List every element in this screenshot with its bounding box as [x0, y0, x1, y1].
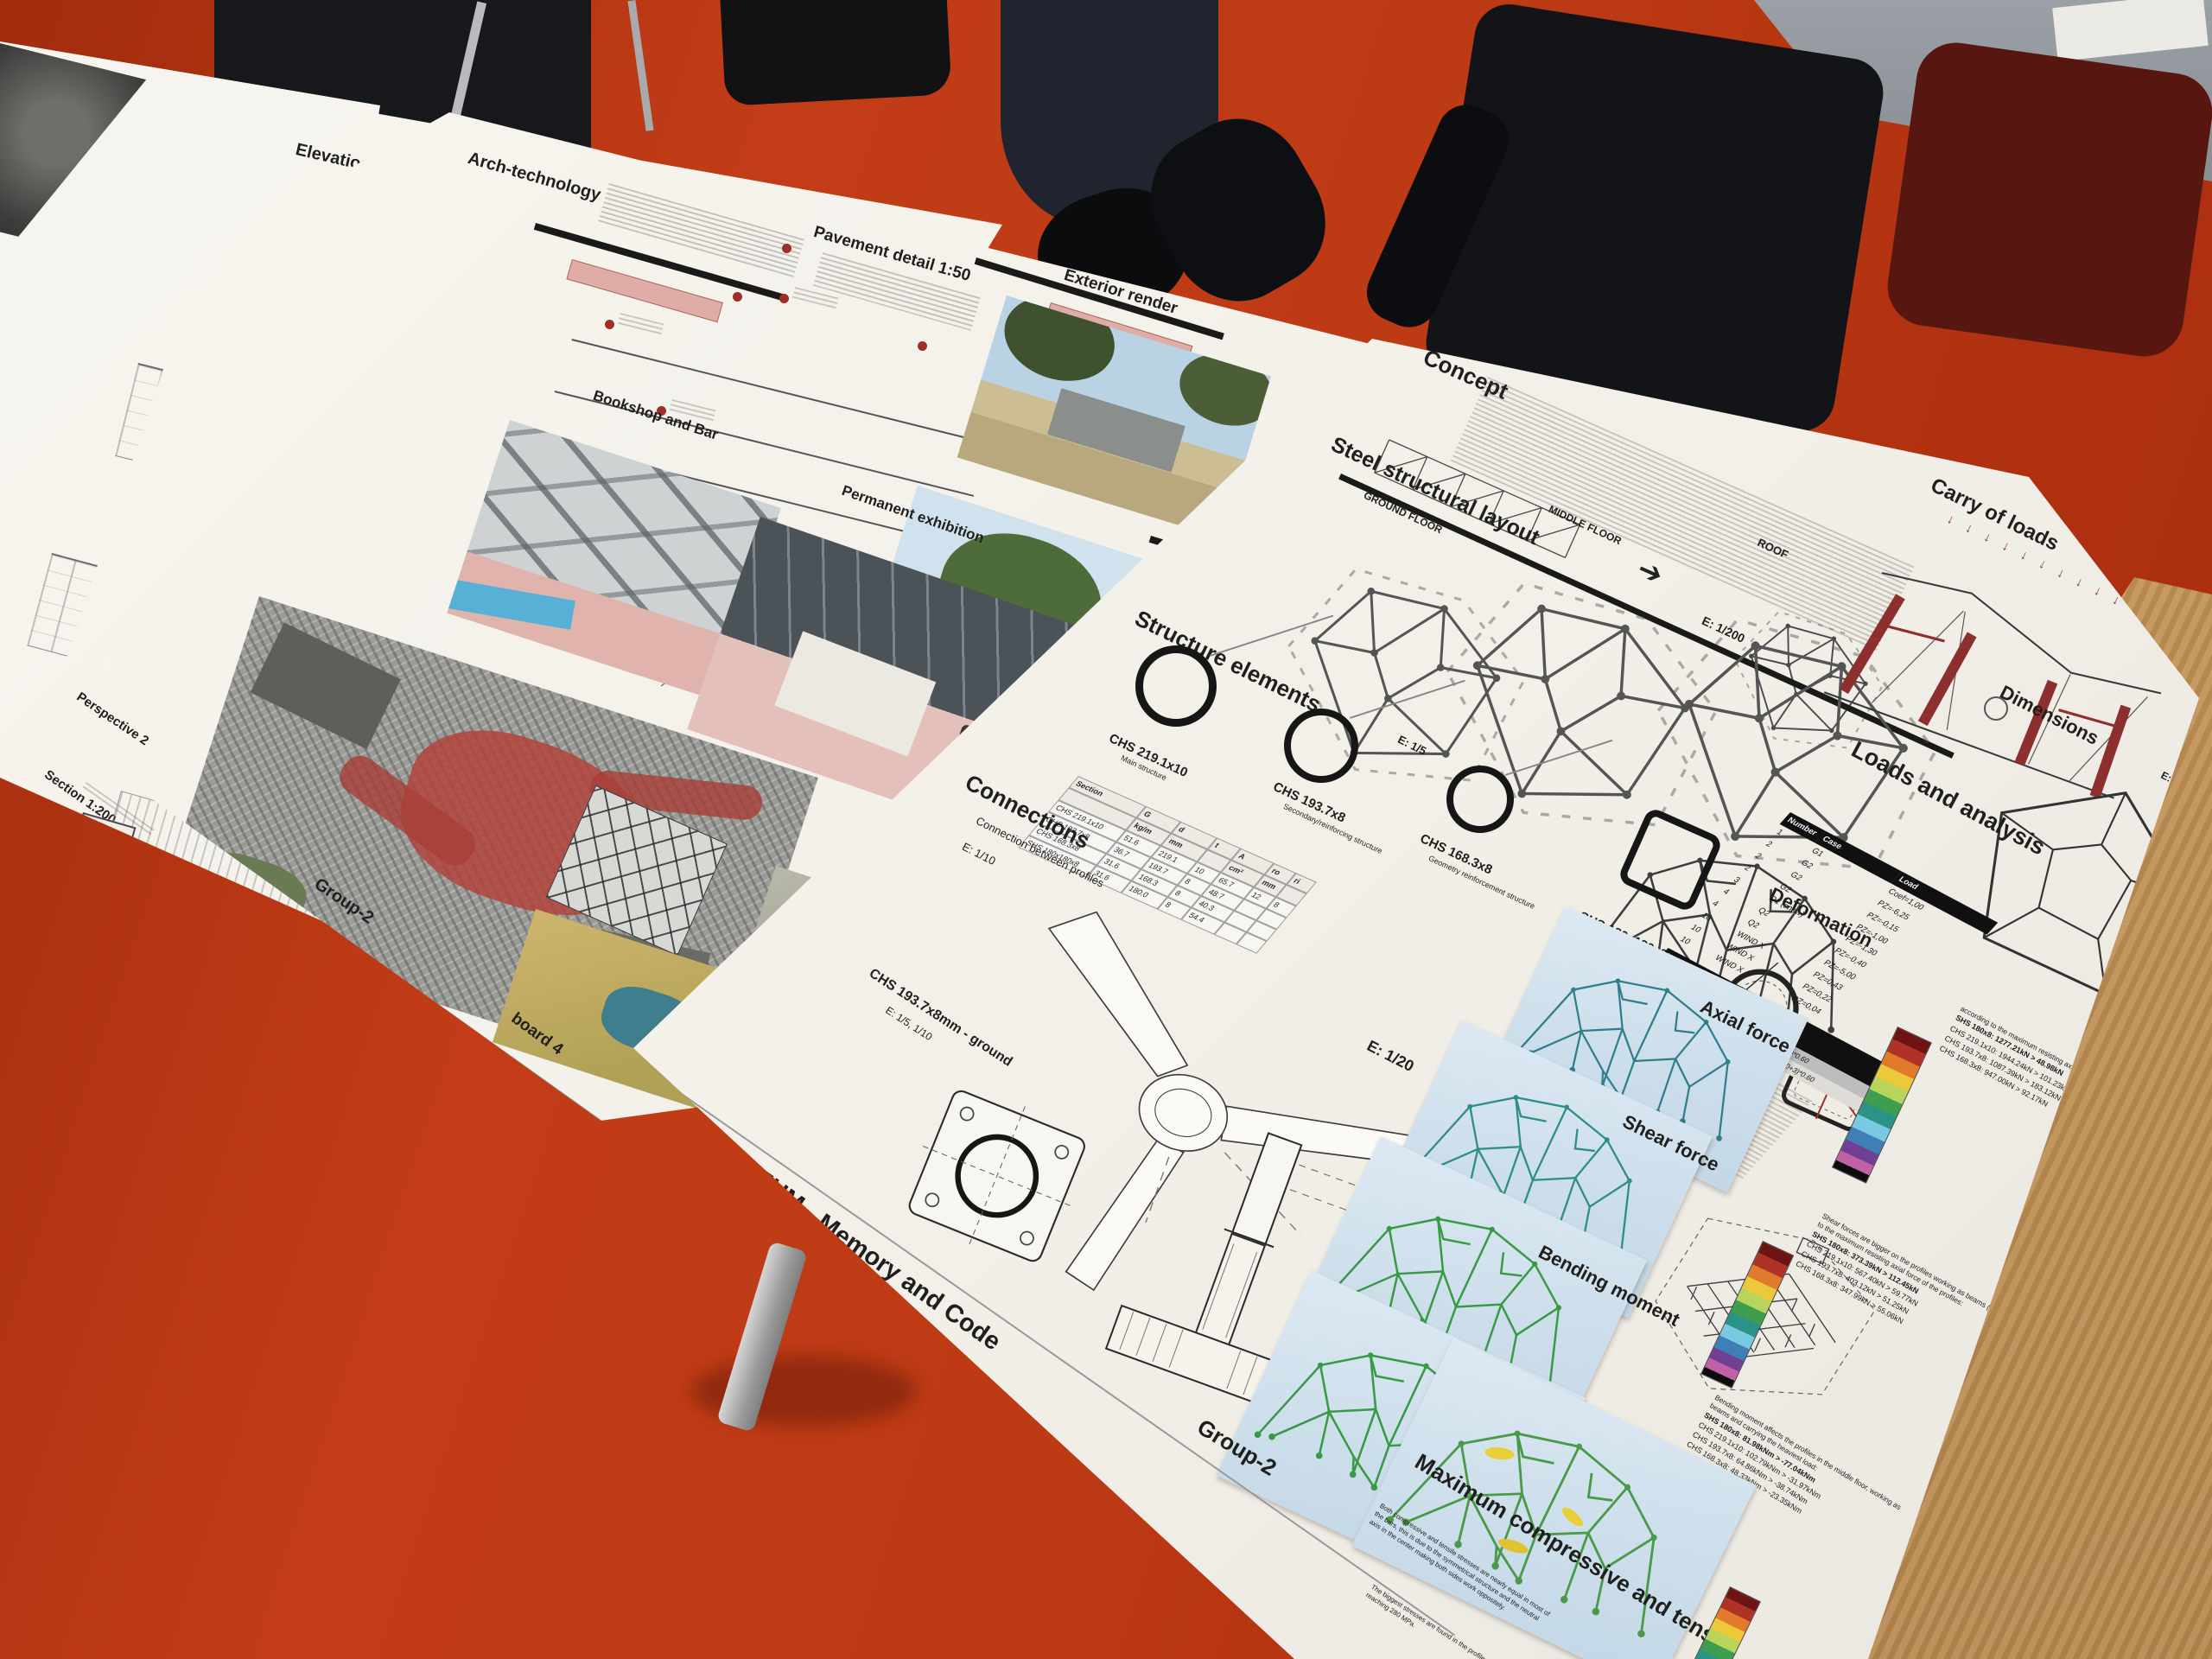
section-ground-bar — [46, 1009, 325, 1112]
north-circle-icon — [1984, 696, 2008, 721]
section-fill — [283, 1013, 356, 1073]
section-ground-bar — [280, 1090, 558, 1192]
dark-chair — [1883, 38, 2212, 362]
section-tower — [31, 812, 137, 1009]
chair-seat — [719, 0, 951, 106]
chair-leg-metal — [627, 0, 653, 131]
callout-dot-icon — [782, 244, 791, 253]
callout-dot-icon — [779, 294, 789, 303]
callout-dot-icon — [733, 292, 742, 302]
chs-168-section — [1446, 766, 1514, 833]
callout-dot-icon — [918, 341, 927, 351]
building-block — [1047, 388, 1185, 472]
section-fill — [136, 972, 199, 1027]
callout-dot-icon — [605, 320, 614, 329]
photo-scene: Exploded axonometry Elevations Section 1… — [0, 0, 2212, 1659]
chs-193-section — [1284, 709, 1358, 783]
section-fill — [218, 1001, 265, 1043]
chs-219-section — [1135, 645, 1217, 727]
